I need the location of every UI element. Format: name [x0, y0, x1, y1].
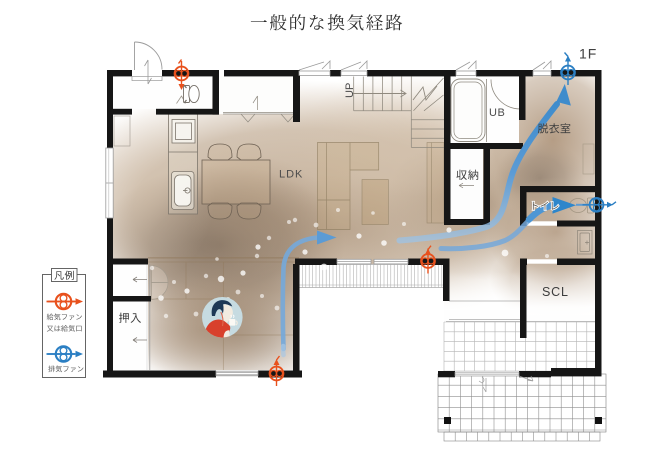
- svg-text:LDK: LDK: [279, 169, 303, 181]
- svg-text:UP: UP: [344, 83, 356, 98]
- svg-text:1F: 1F: [579, 46, 597, 62]
- svg-text:UB: UB: [489, 107, 505, 119]
- svg-text:SCL: SCL: [542, 285, 569, 299]
